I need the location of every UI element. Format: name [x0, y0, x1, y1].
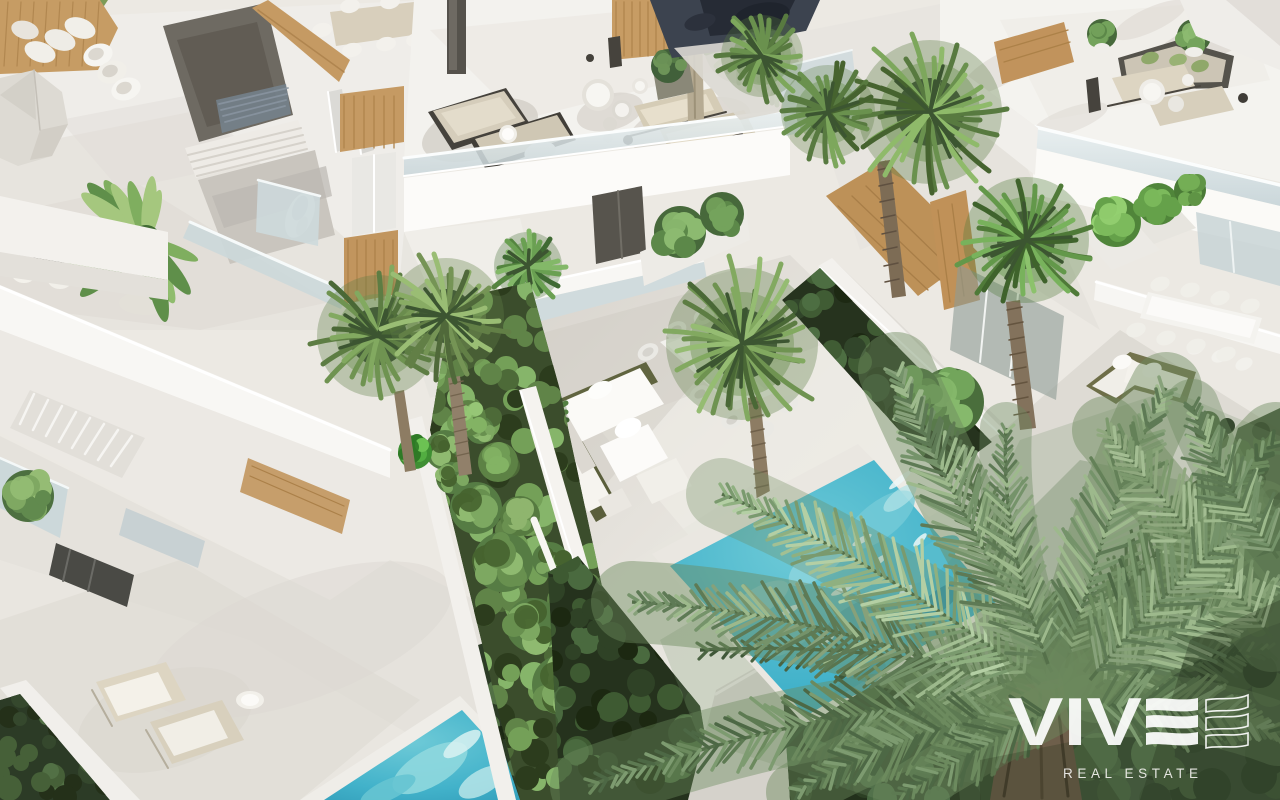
svg-text:REAL ESTATE: REAL ESTATE: [1063, 766, 1203, 781]
svg-text:VIV: VIV: [1008, 684, 1142, 760]
